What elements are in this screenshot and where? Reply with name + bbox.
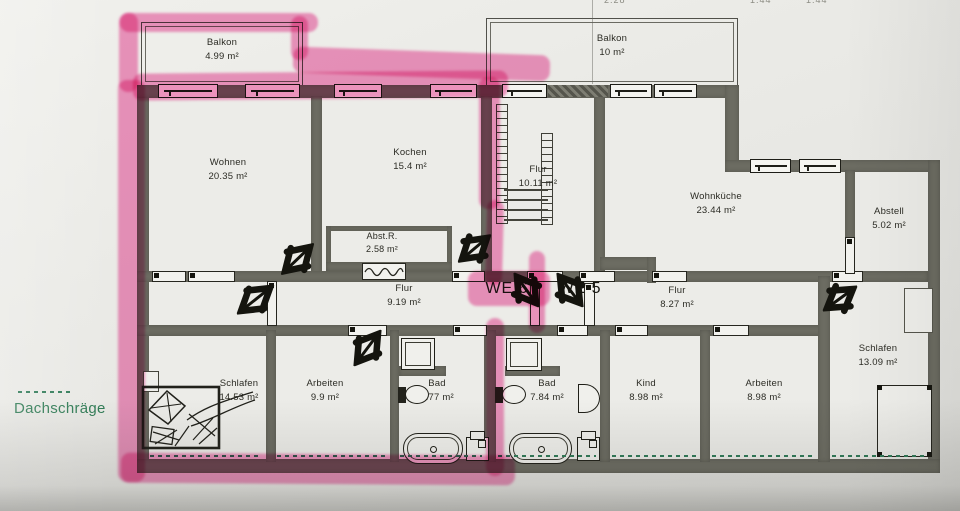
highlighter-stroke	[120, 13, 318, 32]
highlighter-stroke	[133, 70, 508, 100]
highlighter-stroke	[118, 80, 145, 482]
highlighter-stroke	[121, 453, 515, 486]
highlighter-stroke	[479, 77, 500, 209]
highlighter-stroke	[529, 251, 545, 333]
floor-plan-photo: 2.28 1.44 1.44	[0, 0, 960, 511]
highlighter-stroke	[486, 318, 504, 476]
